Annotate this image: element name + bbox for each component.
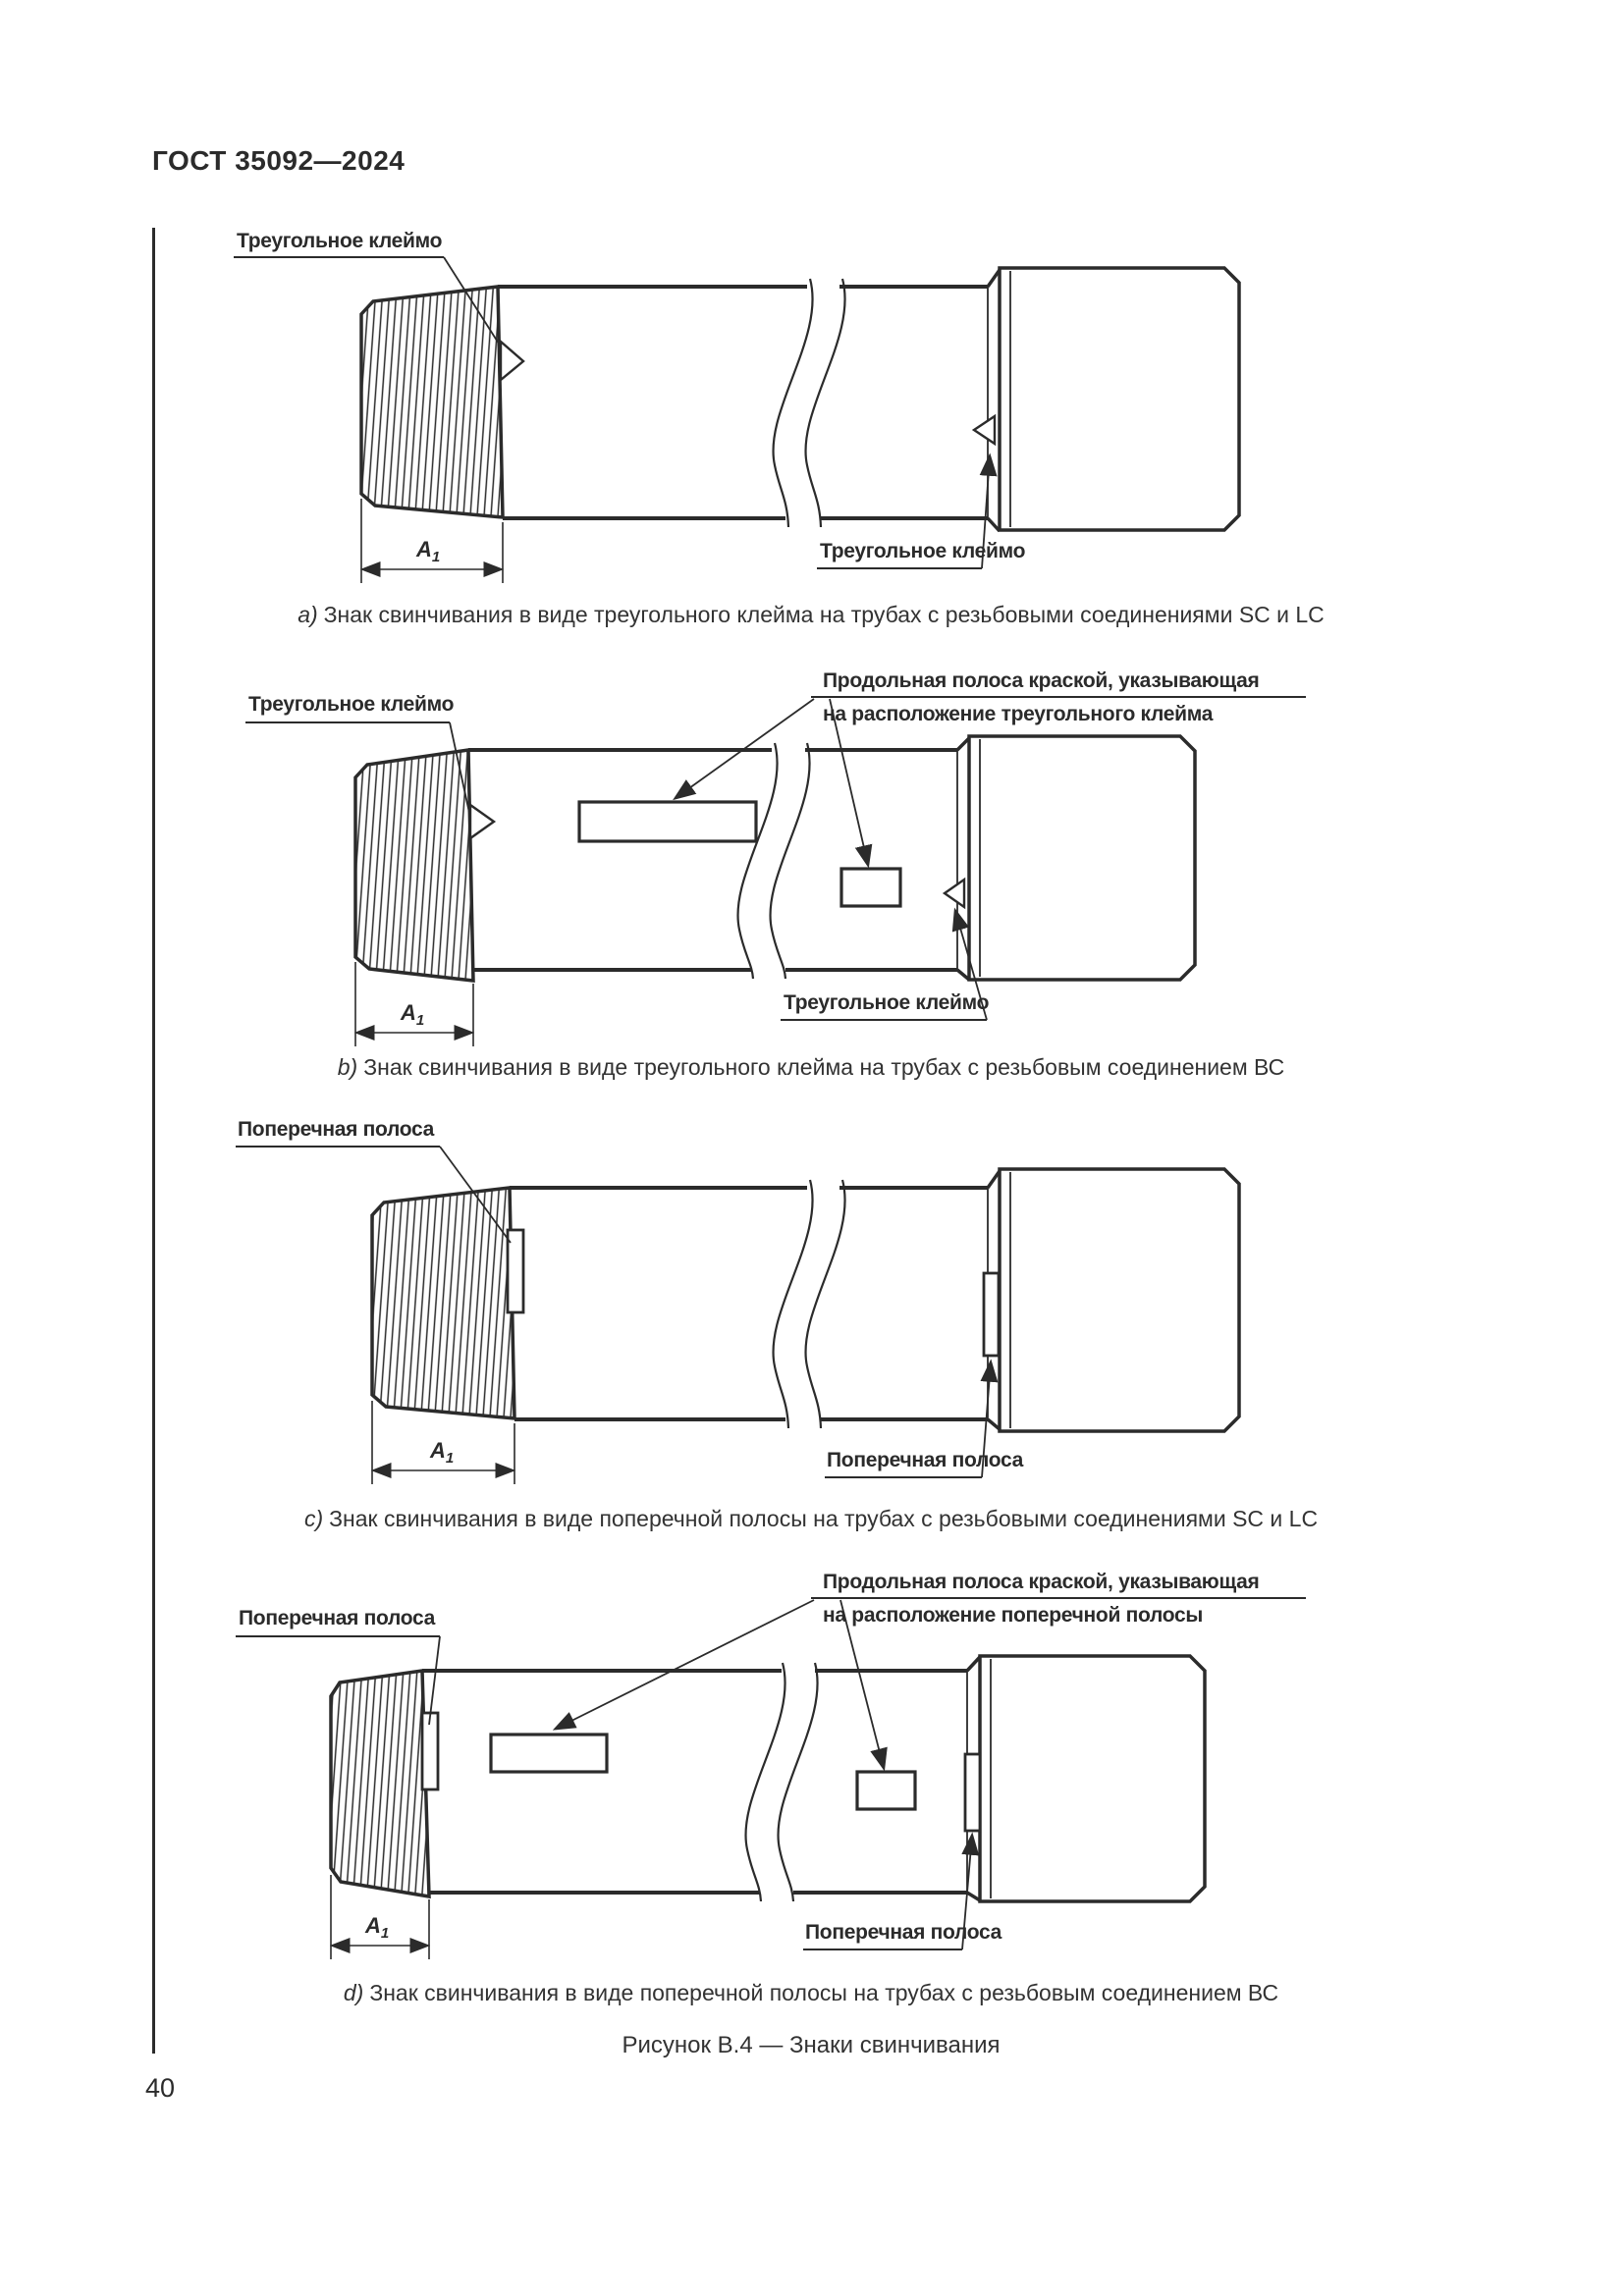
diagram-c-transverse-stripe-sc-lc: Поперечная полоса Поперечная полоса A1 xyxy=(137,1114,1453,1499)
page-title: ГОСТ 35092—2024 xyxy=(152,145,405,177)
longitudinal-paint-stripe-d-1 xyxy=(491,1735,607,1772)
caption-letter: b) xyxy=(338,1054,357,1080)
triangle-mark-icon-a-pin xyxy=(501,342,523,380)
pipe-break-lines-c xyxy=(773,1180,844,1428)
caption-letter: c) xyxy=(304,1506,323,1531)
caption-a: a)Знак свинчивания в виде треугольного к… xyxy=(154,602,1468,628)
transverse-stripe-d-coupling xyxy=(965,1754,980,1831)
triangle-mark-icon-b-coupling xyxy=(945,880,964,907)
label-triangle-mark-a-top: Треугольное клеймо xyxy=(237,230,442,252)
figure-caption: Рисунок В.4 — Знаки свинчивания xyxy=(154,2032,1468,2059)
label-leader-arrow xyxy=(556,1600,814,1729)
label-transverse-stripe-c-bottom: Поперечная полоса xyxy=(827,1449,1024,1471)
label-transverse-stripe-d-bottom: Поперечная полоса xyxy=(805,1921,1002,1944)
label-longitudinal-stripe-d-line1: Продольная полоса краской, указывающая xyxy=(823,1571,1259,1593)
pipe-pin-thread-d xyxy=(331,1671,429,1896)
label-leader xyxy=(429,1636,440,1725)
label-triangle-mark-a-bottom: Треугольное клеймо xyxy=(820,540,1025,562)
pipe-pin-thread-a xyxy=(361,287,503,517)
caption-text: Знак свинчивания в виде треугольного кле… xyxy=(324,602,1325,627)
page-number: 40 xyxy=(145,2073,175,2104)
label-longitudinal-stripe-b-line2: на расположение треугольного клейма xyxy=(823,703,1214,725)
pipe-pin-thread-c xyxy=(372,1188,514,1418)
coupling-c xyxy=(1000,1169,1239,1431)
pipe-pin-thread-b xyxy=(355,750,473,981)
coupling-a xyxy=(1000,268,1239,530)
caption-b: b)Знак свинчивания в виде треугольного к… xyxy=(154,1054,1468,1081)
caption-text: Знак свинчивания в виде поперечной полос… xyxy=(329,1506,1318,1531)
longitudinal-paint-stripe-b-2 xyxy=(841,869,900,906)
caption-letter: d) xyxy=(344,1980,363,2005)
pipe-break-lines-d xyxy=(745,1663,817,1901)
diagram-a-triangle-mark-sc-lc: Треугольное клеймо Треугольное клеймо A1 xyxy=(137,224,1453,595)
coupling-d xyxy=(980,1656,1205,1901)
dim-label-d1: A1 xyxy=(364,1913,389,1942)
transverse-stripe-d-pin xyxy=(422,1713,438,1789)
document-page: ГОСТ 35092—2024 Треугольное клеймо xyxy=(0,0,1624,2296)
label-longitudinal-stripe-d-line2: на расположение поперечной полосы xyxy=(823,1604,1203,1627)
pipe-end-lip-a xyxy=(988,270,1000,531)
diagram-b-triangle-mark-bc: Треугольное клеймо Продольная полоса кра… xyxy=(137,643,1453,1055)
triangle-mark-icon-b-pin xyxy=(470,805,494,838)
pipe-break-lines-a xyxy=(773,279,844,527)
longitudinal-paint-stripe-d-2 xyxy=(857,1772,915,1809)
transverse-stripe-c-coupling xyxy=(984,1273,999,1356)
coupling-b xyxy=(969,736,1195,980)
dim-label-a1: A1 xyxy=(415,537,440,565)
label-longitudinal-stripe-b-line1: Продольная полоса краской, указывающая xyxy=(823,669,1259,692)
caption-text: Знак свинчивания в виде треугольного кле… xyxy=(363,1054,1284,1080)
dim-label-b1: A1 xyxy=(400,1000,424,1029)
label-triangle-mark-b-bottom: Треугольное клеймо xyxy=(784,991,989,1014)
caption-text: Знак свинчивания в виде поперечной полос… xyxy=(369,1980,1278,2005)
caption-c: c)Знак свинчивания в виде поперечной пол… xyxy=(154,1506,1468,1532)
caption-d: d)Знак свинчивания в виде поперечной пол… xyxy=(154,1980,1468,2006)
diagram-d-transverse-stripe-bc: Поперечная полоса Продольная полоса крас… xyxy=(137,1551,1453,1973)
pipe-break-lines-b xyxy=(737,743,809,979)
longitudinal-paint-stripe-b-1 xyxy=(579,802,756,841)
label-transverse-stripe-c-top: Поперечная полоса xyxy=(238,1118,435,1141)
label-triangle-mark-b-left: Треугольное клеймо xyxy=(248,693,454,716)
pipe-end-lip-b xyxy=(957,738,969,980)
dim-label-c1: A1 xyxy=(429,1438,454,1467)
label-transverse-stripe-d-left: Поперечная полоса xyxy=(239,1607,436,1629)
triangle-mark-icon-a-coupling xyxy=(974,416,995,444)
caption-letter: a) xyxy=(298,602,317,627)
